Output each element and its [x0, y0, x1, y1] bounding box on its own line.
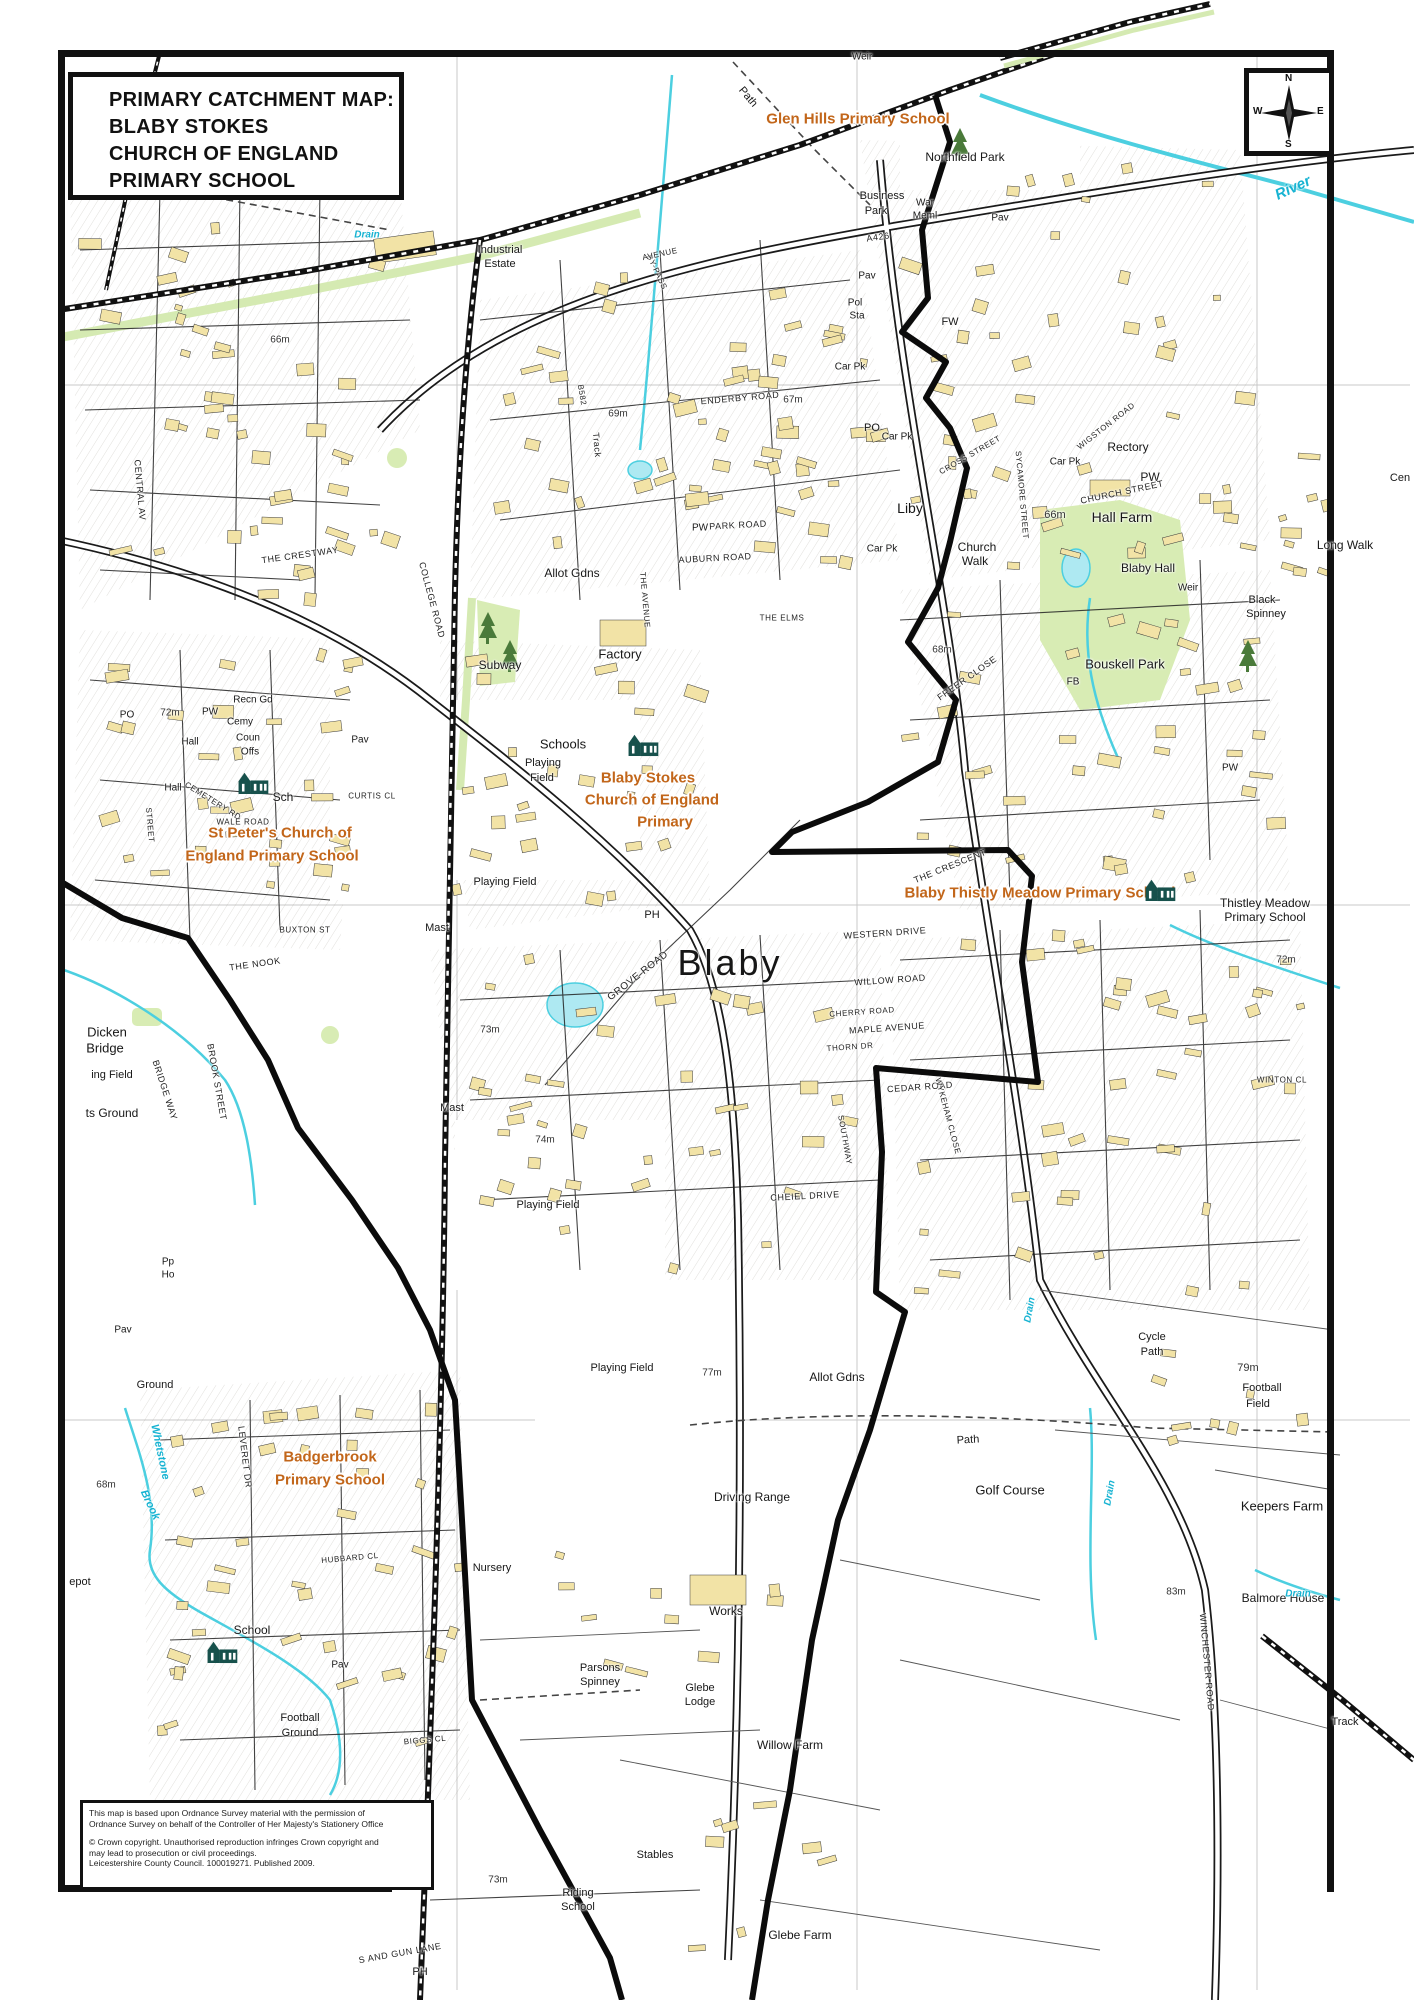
- compass-s: S: [1285, 139, 1292, 150]
- compass-box: N S W E: [1244, 68, 1334, 156]
- attribution-line-4: may lead to prosecution or civil proceed…: [89, 1848, 425, 1859]
- attribution-line-3: © Crown copyright. Unauthorised reproduc…: [89, 1837, 425, 1848]
- catchment-map-page: { "title_box": { "lines": ["PRIMARY CATC…: [0, 0, 1414, 2000]
- compass-w: W: [1253, 106, 1262, 117]
- title-line-3: CHURCH OF ENGLAND: [109, 141, 399, 168]
- title-line-4: PRIMARY SCHOOL: [109, 168, 399, 195]
- compass-e: E: [1317, 106, 1324, 117]
- compass-n: N: [1285, 73, 1292, 84]
- attribution-line-2: Ordnance Survey on behalf of the Control…: [89, 1819, 425, 1830]
- title-box: PRIMARY CATCHMENT MAP: BLABY STOKES CHUR…: [68, 72, 404, 200]
- attribution-line-1: This map is based upon Ordnance Survey m…: [89, 1808, 425, 1819]
- map-canvas: [0, 0, 1414, 2000]
- attribution-line-5: Leicestershire County Council. 100019271…: [89, 1858, 425, 1869]
- title-line-1: PRIMARY CATCHMENT MAP:: [109, 87, 399, 114]
- title-line-2: BLABY STOKES: [109, 114, 399, 141]
- attribution-box: This map is based upon Ordnance Survey m…: [80, 1800, 434, 1890]
